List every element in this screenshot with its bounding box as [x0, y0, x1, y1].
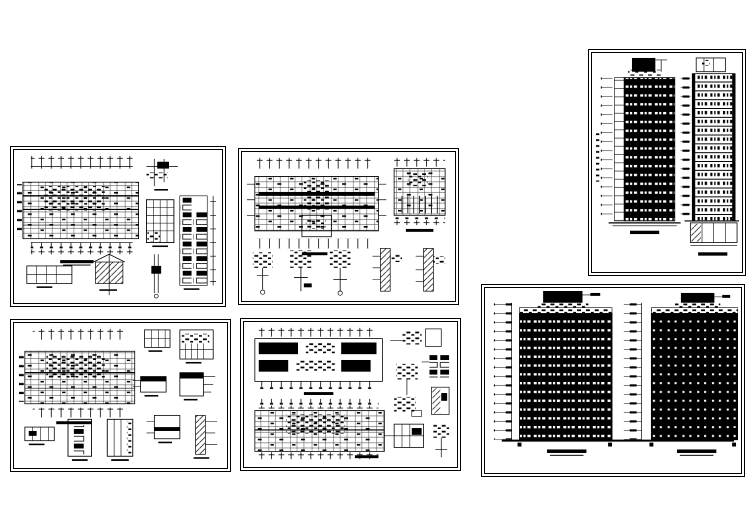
sheet-elevations-b	[481, 284, 745, 477]
section-detail-1	[253, 252, 273, 294]
upper-floor-plan	[255, 327, 383, 395]
detail-section-corner	[180, 373, 215, 401]
wall-section-4	[373, 248, 402, 291]
margin-vertical-label	[596, 131, 599, 182]
sheet-inner-frame	[243, 321, 458, 468]
caption-smudge	[698, 252, 727, 255]
detail-callout-1	[390, 329, 441, 346]
detail-small-plan	[25, 427, 54, 445]
basement-section	[685, 221, 739, 246]
tower-elevation-a	[519, 291, 612, 456]
main-floor-plan	[17, 182, 139, 238]
dimension-column-left	[494, 303, 512, 440]
sheet-inner-frame	[484, 287, 742, 474]
main-floor-plan	[247, 157, 386, 255]
sheet-plan-details-a	[10, 146, 226, 307]
axis-tick-row-bottom	[31, 243, 133, 255]
caption-smudge	[355, 455, 379, 458]
door-elevation-1	[68, 419, 92, 461]
tower-elevation-b	[651, 293, 738, 456]
main-floor-plan	[19, 328, 135, 424]
sheet-plan-details-b	[238, 148, 459, 305]
ground-line	[502, 441, 736, 447]
plan-caption-smudge	[60, 260, 93, 265]
sheet-plan-details-d	[240, 318, 461, 471]
axis-tick-row-top	[31, 155, 133, 169]
tower-elevation-dark	[601, 58, 681, 234]
detail-bottom-left-plan	[27, 266, 72, 288]
wall-section-5	[416, 248, 445, 291]
detail-callout-3	[396, 364, 418, 395]
secondary-floor-plan	[394, 157, 445, 232]
detail-window-elevation	[146, 200, 173, 247]
caption-smudge	[677, 449, 716, 453]
caption-smudge	[56, 421, 91, 424]
detail-window-a	[145, 330, 171, 352]
sheet-inner-frame	[241, 151, 456, 302]
sheet-elevations-a	[588, 49, 746, 276]
caption-smudge	[630, 231, 659, 234]
detail-wall-section-tall	[180, 196, 207, 290]
detail-callout-5	[394, 397, 421, 416]
lower-floor-plan	[255, 399, 384, 459]
detail-column-strip	[151, 254, 161, 298]
detail-section-roof	[93, 254, 124, 295]
detail-callout-2	[422, 354, 449, 377]
sheet-inner-frame	[591, 52, 743, 273]
detail-top-right	[146, 159, 177, 191]
vertical-dimension-line	[210, 196, 216, 286]
detail-section-4	[194, 415, 218, 458]
door-elevation-2	[107, 419, 133, 461]
blueprint-canvas	[0, 0, 749, 530]
caption-smudge	[547, 449, 586, 453]
detail-callout-7	[433, 424, 449, 457]
tower-elevation-light	[681, 58, 739, 256]
section-detail-2	[290, 250, 312, 291]
sheet-inner-frame	[13, 322, 228, 469]
sheet-inner-frame	[13, 149, 223, 304]
detail-callout-6	[384, 424, 423, 447]
section-detail-3	[329, 250, 351, 295]
detail-window-b	[180, 330, 213, 364]
detail-section-3	[146, 415, 179, 443]
sheet-plan-details-c	[10, 319, 231, 472]
caption-smudge	[304, 392, 333, 395]
dimension-column-middle	[624, 303, 642, 440]
detail-section-small	[133, 377, 166, 397]
detail-callout-4	[431, 387, 449, 414]
